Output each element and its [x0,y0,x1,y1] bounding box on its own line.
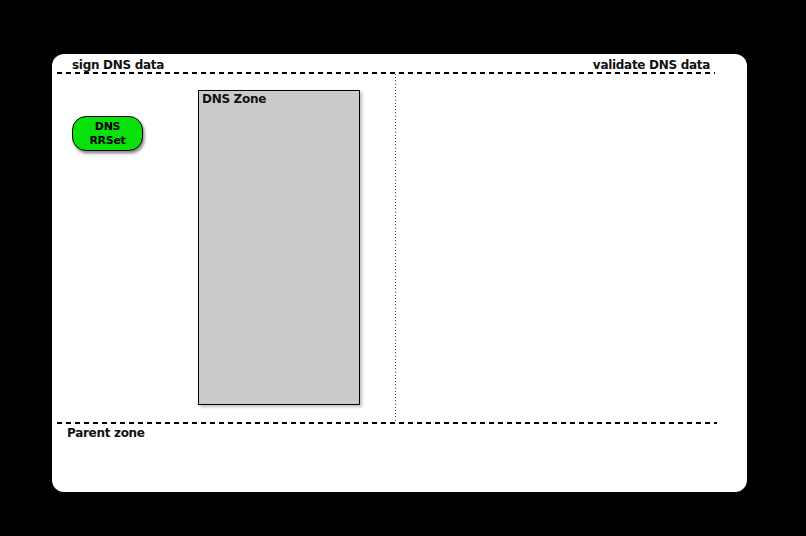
dns-zone-title: DNS Zone [199,91,359,106]
bottom-dashed-divider [57,422,717,424]
dns-rrset-line1: DNS [95,120,120,134]
top-dashed-divider [57,72,715,74]
diagram-panel: sign DNS data validate DNS data Parent z… [52,54,747,492]
diagram-stage: sign DNS data validate DNS data Parent z… [0,0,806,536]
parent-zone-label: Parent zone [67,426,145,440]
validate-dns-data-label: validate DNS data [593,58,710,72]
vertical-dotted-divider [395,74,396,422]
sign-dns-data-label: sign DNS data [72,58,164,72]
dns-rrset-line2: RRSet [89,134,125,148]
dns-zone-box: DNS Zone [198,90,360,405]
dns-rrset-node: DNS RRSet [72,116,143,151]
